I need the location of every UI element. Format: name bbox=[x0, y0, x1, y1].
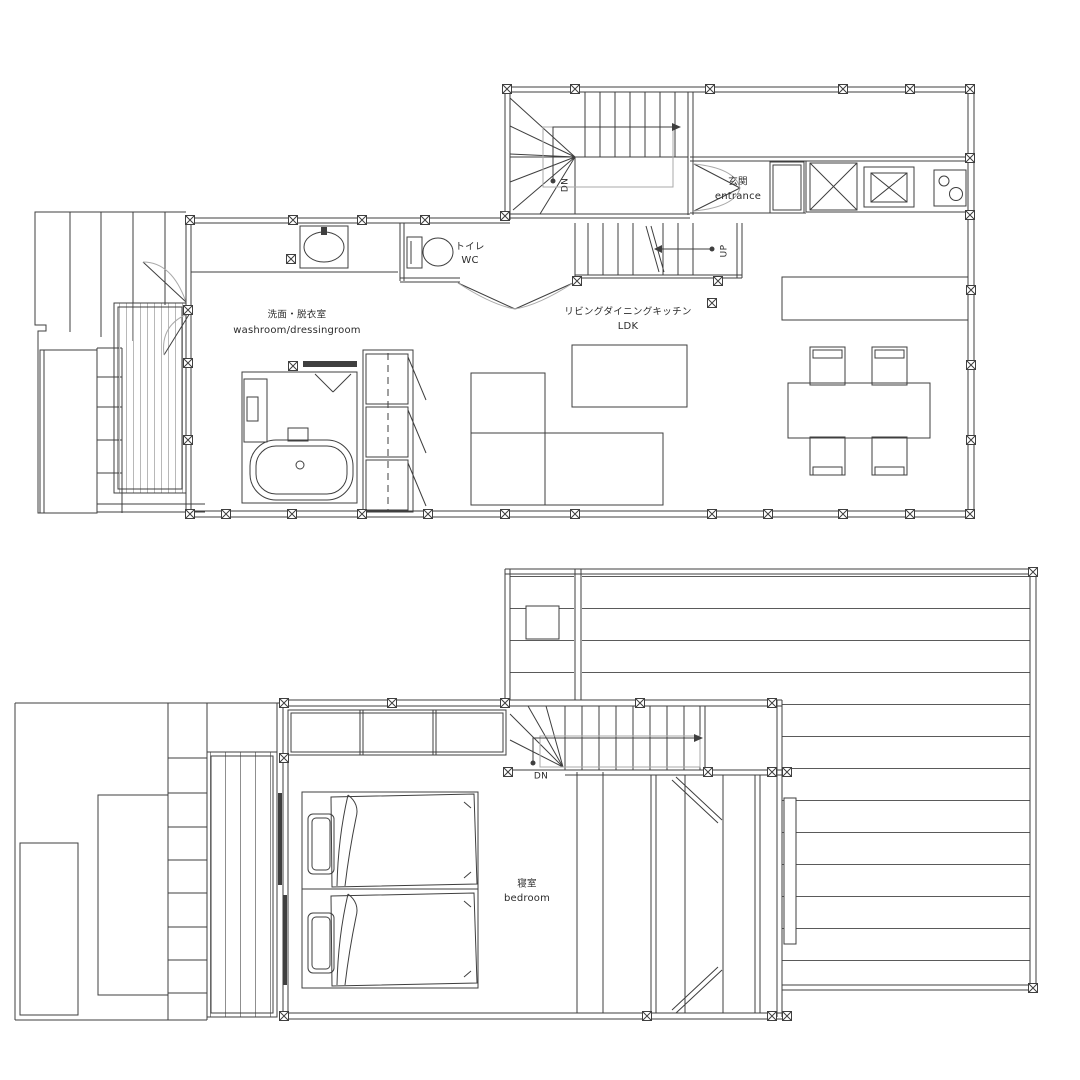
washbasin bbox=[304, 232, 344, 262]
stove bbox=[934, 170, 966, 206]
skylight-box bbox=[526, 606, 559, 639]
floor-plan-drawing bbox=[0, 0, 1080, 1080]
room-label-bedroom-jp: 寝室 bbox=[517, 879, 537, 889]
floor2-stair-dn bbox=[510, 706, 703, 770]
beds bbox=[302, 792, 478, 988]
coffee-table bbox=[572, 345, 687, 407]
deck-bench bbox=[784, 798, 796, 944]
bed-2 bbox=[308, 893, 477, 986]
storage-shelves bbox=[363, 350, 426, 512]
stair-label-dn-2f: DN bbox=[534, 773, 548, 782]
dining-furniture bbox=[782, 277, 968, 475]
west-deck bbox=[35, 212, 205, 513]
entrance-area bbox=[694, 162, 804, 213]
floor-plan-canvas: トイレ WC 洗面・脱衣室 washroom/dressingroom リビング… bbox=[0, 0, 1080, 1080]
west-balcony bbox=[15, 703, 285, 1020]
room-label-toilet-jp: トイレ bbox=[455, 242, 484, 252]
stair-label-dn-1f: DN bbox=[562, 178, 571, 192]
room-label-ldk-en: LDK bbox=[618, 322, 638, 332]
floor1-walls bbox=[186, 87, 974, 517]
living-furniture bbox=[471, 345, 687, 505]
room-label-entrance-en: entrance bbox=[715, 192, 761, 202]
bathroom-fixtures bbox=[242, 361, 357, 503]
floor1-plan bbox=[35, 87, 974, 517]
dining-table bbox=[788, 383, 930, 438]
balcony-deck bbox=[207, 752, 277, 1017]
floor2-walls bbox=[277, 700, 782, 1019]
floor1-stair-up bbox=[588, 223, 715, 275]
room-label-bedroom-en: bedroom bbox=[504, 894, 550, 904]
room-label-ldk-jp: リビングダイニングキッチン bbox=[564, 307, 691, 317]
bedroom-closet bbox=[288, 710, 506, 755]
stair-label-up-1f: UP bbox=[721, 245, 730, 258]
room-label-entrance-jp: 玄関 bbox=[728, 177, 748, 187]
kitchen-fixtures bbox=[810, 163, 966, 210]
toilet-fixture bbox=[407, 237, 453, 268]
sofa bbox=[471, 373, 545, 505]
floor2-plan bbox=[15, 569, 1036, 1020]
bed-1 bbox=[308, 794, 477, 887]
room-label-toilet-en: WC bbox=[461, 256, 478, 266]
counter-desk bbox=[782, 277, 968, 320]
stair-dn-arrow-2f bbox=[533, 738, 694, 763]
roof-deck bbox=[505, 569, 1036, 990]
floor1-stair-dn bbox=[510, 92, 688, 214]
stair-dn-arrow bbox=[553, 127, 672, 181]
room-label-washroom-en: washroom/dressingroom bbox=[233, 326, 360, 336]
room-label-washroom-jp: 洗面・脱衣室 bbox=[268, 310, 327, 320]
engawa-deck bbox=[114, 303, 186, 493]
